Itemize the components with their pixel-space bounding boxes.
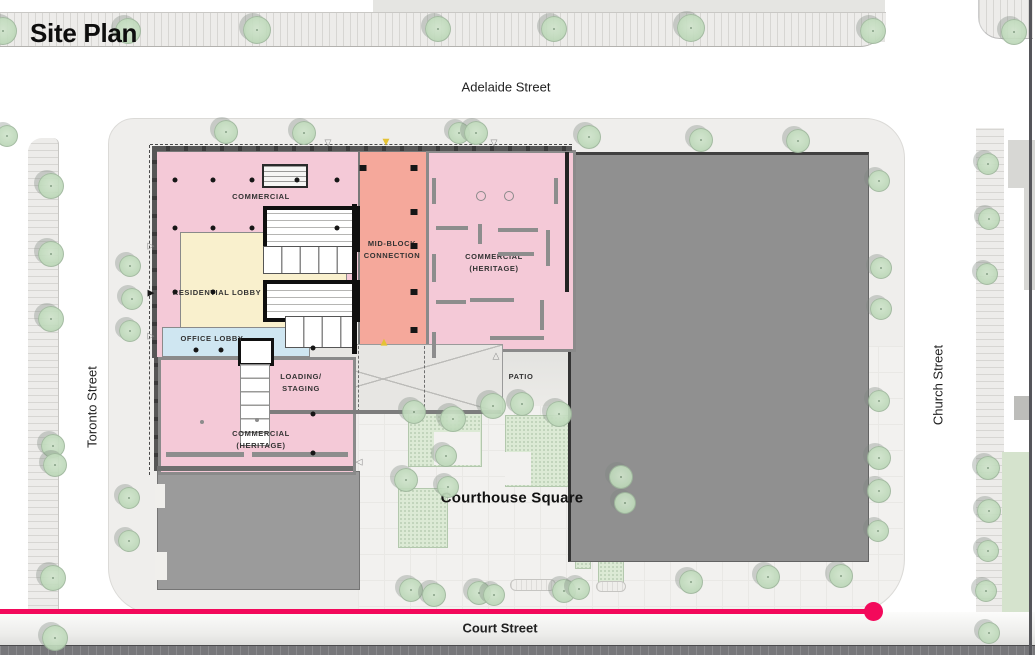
area-label-residential-lobby: RESIDENTIAL LOBBY — [173, 287, 261, 299]
area-label-patio: PATIO — [509, 371, 534, 383]
facade-north — [152, 146, 572, 151]
tree-icon — [0, 125, 18, 147]
street-label-church: Church Street — [931, 345, 946, 425]
wall-existing-west — [565, 152, 569, 292]
planting-bed-notch — [434, 432, 480, 465]
timeline-progress-handle[interactable] — [864, 602, 883, 621]
area-label-commercial: COMMERCIAL — [232, 191, 290, 203]
area-label-midblock: MID-BLOCK CONNECTION — [364, 238, 420, 262]
bench-planter — [596, 581, 626, 592]
property-line-north — [150, 144, 572, 145]
property-line-west — [149, 145, 150, 475]
sidewalk-west — [28, 138, 59, 655]
area-label-office-lobby: OFFICE LOBBY — [180, 333, 243, 345]
street-label-toronto: Toronto Street — [85, 366, 100, 448]
planting-bed-notch — [505, 452, 531, 485]
bench-planter — [510, 579, 556, 591]
sw-building-notch — [155, 552, 167, 580]
core-wall — [352, 204, 357, 354]
courthouse-square-label: Courthouse Square — [441, 490, 584, 507]
frame-edge-line — [1029, 0, 1032, 655]
area-label-heritage-s-line2: (HERITAGE) — [232, 440, 290, 452]
street-label-court: Court Street — [462, 621, 537, 636]
area-label-heritage-ne-line1: COMMERCIAL — [465, 251, 523, 263]
area-label-heritage-ne: COMMERCIAL (HERITAGE) — [465, 251, 523, 275]
midblock-path-line — [424, 346, 425, 412]
wall-heritage-s-south — [157, 466, 353, 471]
area-label-loading-staging: LOADING/ STAGING — [280, 371, 321, 395]
timeline-progress-line[interactable] — [0, 609, 874, 614]
area-label-loading-line1: LOADING/ — [280, 371, 321, 383]
facade-west — [152, 146, 157, 358]
area-label-heritage-s-line1: COMMERCIAL — [232, 428, 290, 440]
existing-building — [568, 152, 869, 562]
facade-west-lower — [154, 357, 158, 471]
sw-building-notch — [155, 484, 165, 508]
vestibule — [262, 164, 308, 188]
area-label-heritage-s: COMMERCIAL (HERITAGE) — [232, 428, 290, 452]
street-label-adelaide: Adelaide Street — [462, 80, 551, 95]
core-cells-row — [263, 246, 354, 274]
page-title: Site Plan — [30, 18, 137, 49]
area-label-midblock-line1: MID-BLOCK — [364, 238, 420, 250]
midblock-path-line — [358, 346, 359, 412]
sidewalk-south — [0, 645, 1035, 655]
wall-loading-south — [263, 410, 501, 414]
existing-building-southwest — [157, 471, 360, 590]
sidewalk-north-east-corner — [978, 0, 1033, 39]
area-label-loading-line2: STAGING — [280, 383, 321, 395]
area-label-midblock-line2: CONNECTION — [364, 250, 420, 262]
site-plan-canvas: Site Plan Adelaide Street Toronto Street… — [0, 0, 1035, 655]
core-cells-row — [285, 316, 354, 348]
sidewalk-east — [976, 128, 1004, 655]
area-label-heritage-ne-line2: (HERITAGE) — [465, 263, 523, 275]
